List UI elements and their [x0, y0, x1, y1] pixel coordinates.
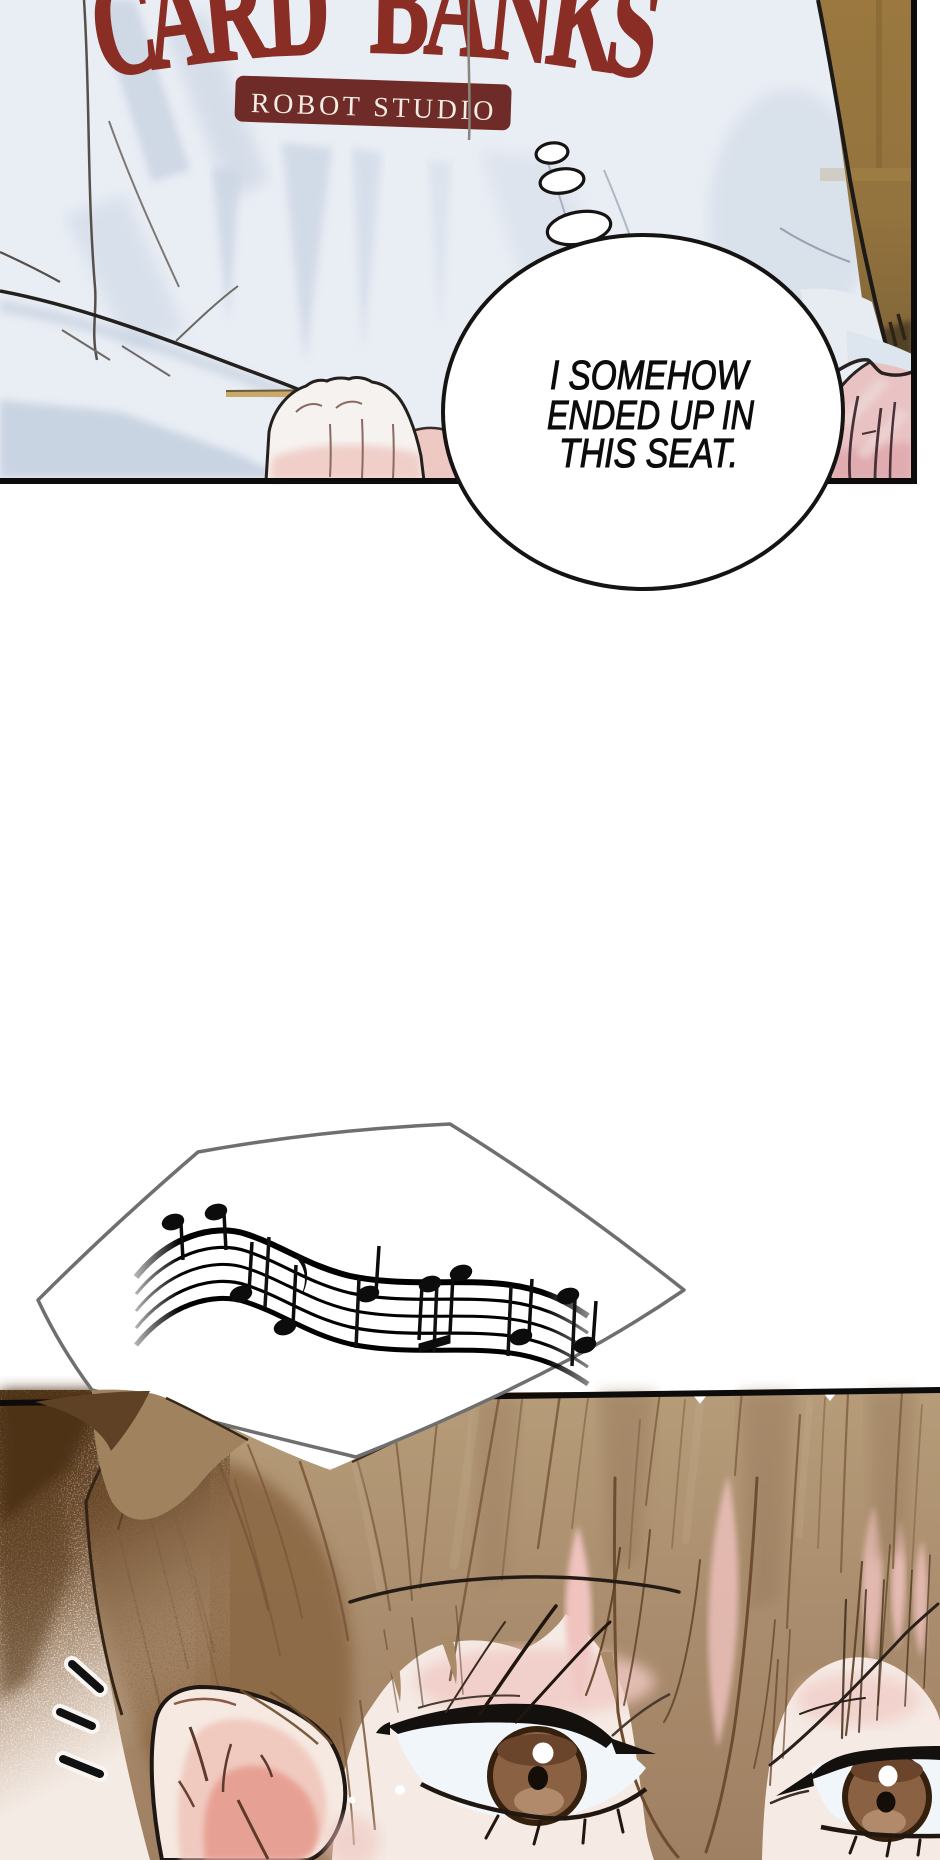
svg-text:B: B [369, 0, 431, 84]
svg-text:D: D [262, 0, 333, 87]
svg-text:THIS SEAT.: THIS SEAT. [559, 430, 738, 476]
